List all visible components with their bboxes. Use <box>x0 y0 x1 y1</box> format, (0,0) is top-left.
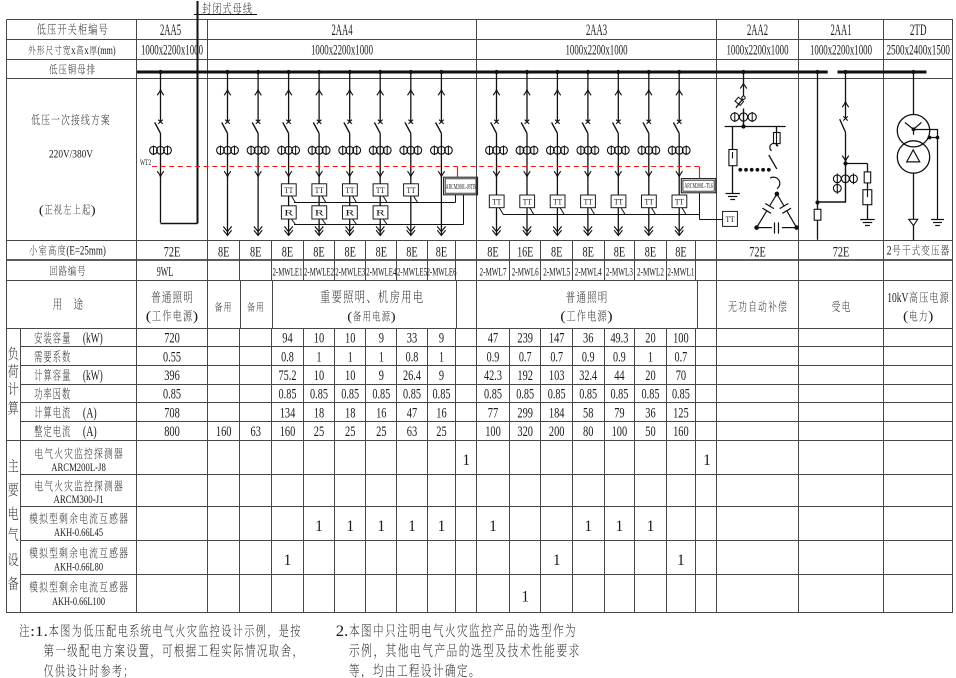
svg-text:2-MWLE3: 2-MWLE3 <box>335 265 365 279</box>
svg-text:1: 1 <box>408 518 416 535</box>
svg-text:1: 1 <box>616 518 624 535</box>
svg-text:100: 100 <box>485 424 501 440</box>
svg-text:72E: 72E <box>833 244 850 260</box>
svg-text:TT: TT <box>315 185 325 195</box>
svg-text:0.7: 0.7 <box>519 349 532 365</box>
svg-text:2TD: 2TD <box>910 22 927 39</box>
svg-text:0.85: 0.85 <box>484 387 502 403</box>
svg-text:1: 1 <box>346 518 354 535</box>
svg-text:103: 103 <box>549 368 565 384</box>
svg-text:25: 25 <box>345 424 355 440</box>
svg-text:18: 18 <box>314 405 324 421</box>
svg-text:AKH-0.66L45: AKH-0.66L45 <box>54 525 103 539</box>
svg-text:63: 63 <box>407 424 417 440</box>
svg-text:1000x2200x1000: 1000x2200x1000 <box>311 42 373 58</box>
svg-text:x: x <box>71 45 76 57</box>
svg-text:16: 16 <box>436 405 447 421</box>
svg-text:47: 47 <box>488 331 499 347</box>
svg-text:2AA4: 2AA4 <box>332 22 353 39</box>
svg-text:8E: 8E <box>583 244 594 260</box>
svg-text:0.85: 0.85 <box>516 387 534 403</box>
svg-text:10: 10 <box>314 331 324 347</box>
svg-text:75.2: 75.2 <box>279 368 297 384</box>
svg-text:2-MWL7: 2-MWL7 <box>480 265 507 279</box>
svg-text:2-MWL1: 2-MWL1 <box>667 265 694 279</box>
svg-text:): ) <box>391 310 396 324</box>
svg-text:0.85: 0.85 <box>403 387 421 403</box>
svg-text:79: 79 <box>614 405 624 421</box>
svg-text:26.4: 26.4 <box>403 368 421 384</box>
svg-text:x: x <box>84 45 89 57</box>
svg-text:2-MWLE4: 2-MWLE4 <box>366 265 396 279</box>
svg-text:ARCM200L-J8TB: ARCM200L-J8TB <box>446 183 476 191</box>
svg-text:80: 80 <box>583 424 593 440</box>
svg-text:2AA3: 2AA3 <box>586 22 607 39</box>
svg-text:1: 1 <box>284 552 292 569</box>
svg-text:200: 200 <box>549 424 565 440</box>
svg-text:8E: 8E <box>250 244 261 260</box>
svg-text:TT: TT <box>492 197 502 207</box>
svg-text:AKH-0.66L100: AKH-0.66L100 <box>52 594 105 608</box>
svg-text:160: 160 <box>280 424 296 440</box>
svg-text:R: R <box>315 208 324 218</box>
svg-text:2AA5: 2AA5 <box>160 22 181 39</box>
svg-text:0.85: 0.85 <box>610 387 628 403</box>
svg-text:0.85: 0.85 <box>672 387 690 403</box>
svg-text:2AA1: 2AA1 <box>831 22 852 39</box>
svg-text:160: 160 <box>216 424 232 440</box>
svg-text:147: 147 <box>549 331 565 347</box>
svg-text:0.85: 0.85 <box>433 387 451 403</box>
svg-text:1: 1 <box>379 349 384 365</box>
svg-text:ARCM300-J1: ARCM300-J1 <box>54 492 104 506</box>
svg-text:36: 36 <box>583 331 594 347</box>
svg-text:396: 396 <box>164 368 180 384</box>
svg-text:(: ( <box>560 309 566 325</box>
svg-text:10: 10 <box>345 368 355 384</box>
svg-text:9: 9 <box>379 331 384 347</box>
svg-text:100: 100 <box>612 424 628 440</box>
svg-text:TT: TT <box>407 185 417 195</box>
svg-text:0.7: 0.7 <box>675 349 688 365</box>
svg-text:2: 2 <box>887 244 892 258</box>
svg-text:20: 20 <box>645 368 655 384</box>
svg-text:1: 1 <box>521 589 529 606</box>
svg-text:192: 192 <box>517 368 533 384</box>
svg-text:0.7: 0.7 <box>550 349 563 365</box>
svg-text:8E: 8E <box>406 244 417 260</box>
svg-text:TT: TT <box>726 214 736 224</box>
svg-text:R: R <box>284 208 293 218</box>
svg-text:): ) <box>193 309 198 325</box>
svg-text:10: 10 <box>345 331 355 347</box>
svg-text:100: 100 <box>673 331 689 347</box>
svg-text:49.3: 49.3 <box>610 331 628 347</box>
svg-text:70: 70 <box>676 368 686 384</box>
svg-text:8E: 8E <box>218 244 229 260</box>
svg-text:299: 299 <box>517 405 533 421</box>
svg-text:TT: TT <box>614 197 624 207</box>
svg-text:720: 720 <box>164 331 180 347</box>
svg-text:58: 58 <box>583 405 593 421</box>
svg-text:9: 9 <box>439 368 444 384</box>
svg-text:8E: 8E <box>345 244 356 260</box>
svg-text:72E: 72E <box>749 244 766 260</box>
svg-text:2-MWLE1: 2-MWLE1 <box>273 265 303 279</box>
svg-text:2-MWL3: 2-MWL3 <box>606 265 633 279</box>
svg-text:1: 1 <box>553 552 561 569</box>
svg-text:320: 320 <box>517 424 533 440</box>
svg-text:134: 134 <box>280 405 296 421</box>
svg-text:8E: 8E <box>614 244 625 260</box>
svg-text:TT: TT <box>584 197 594 207</box>
svg-text:0.55: 0.55 <box>163 349 181 365</box>
svg-text:800: 800 <box>164 424 180 440</box>
svg-text:0.85: 0.85 <box>642 387 660 403</box>
svg-text:TT: TT <box>376 185 386 195</box>
svg-text:2-MWLE6: 2-MWLE6 <box>427 265 457 279</box>
svg-text:(E=25mm): (E=25mm) <box>66 244 106 258</box>
svg-text:0.85: 0.85 <box>163 387 181 403</box>
svg-text:8E: 8E <box>313 244 324 260</box>
svg-text:20: 20 <box>645 331 655 347</box>
svg-text:77: 77 <box>488 405 499 421</box>
svg-text:1000x2200x1000: 1000x2200x1000 <box>141 42 203 58</box>
svg-text:1: 1 <box>439 349 444 365</box>
svg-text:8E: 8E <box>645 244 656 260</box>
svg-text:1: 1 <box>377 518 385 535</box>
svg-text:TT: TT <box>675 197 685 207</box>
svg-text:AKH-0.66L80: AKH-0.66L80 <box>54 560 103 574</box>
svg-text:0.85: 0.85 <box>372 387 390 403</box>
svg-text:16: 16 <box>376 405 387 421</box>
svg-text:160: 160 <box>673 424 689 440</box>
svg-text:(mm): (mm) <box>98 45 116 57</box>
svg-text:0.9: 0.9 <box>613 349 626 365</box>
svg-text:0.9: 0.9 <box>582 349 595 365</box>
svg-text:1: 1 <box>348 349 353 365</box>
svg-text:TT: TT <box>523 197 533 207</box>
svg-text:1: 1 <box>315 518 323 535</box>
svg-text:1000x2200x1000: 1000x2200x1000 <box>727 42 789 58</box>
svg-text:1: 1 <box>677 552 685 569</box>
svg-text:2-MWL6: 2-MWL6 <box>512 265 539 279</box>
svg-text:2-MWL4: 2-MWL4 <box>575 265 602 279</box>
svg-text:1: 1 <box>648 349 653 365</box>
svg-text:): ) <box>928 309 933 324</box>
svg-text:1: 1 <box>489 518 497 535</box>
svg-text:8E: 8E <box>675 244 686 260</box>
svg-text:1000x2200x1000: 1000x2200x1000 <box>810 42 872 58</box>
svg-text:2AA2: 2AA2 <box>747 22 768 39</box>
svg-text:8E: 8E <box>551 244 562 260</box>
svg-text:2500x2400x1500: 2500x2400x1500 <box>886 42 950 58</box>
svg-text:(kW): (kW) <box>83 368 103 384</box>
svg-text:TT: TT <box>645 197 655 207</box>
svg-text:32.4: 32.4 <box>579 368 597 384</box>
svg-text::1.: :1. <box>30 623 48 640</box>
svg-text:9: 9 <box>379 368 384 384</box>
svg-text:(: ( <box>146 309 152 325</box>
svg-text:R: R <box>345 208 354 218</box>
svg-text:1: 1 <box>316 349 321 365</box>
svg-text:1: 1 <box>438 518 446 535</box>
svg-text:): ) <box>607 309 612 325</box>
svg-text:(kW): (kW) <box>83 331 103 347</box>
svg-text:1000x2200x1000: 1000x2200x1000 <box>566 42 628 58</box>
svg-text:8E: 8E <box>282 244 293 260</box>
svg-text:72E: 72E <box>164 244 181 260</box>
svg-text:0.8: 0.8 <box>406 349 419 365</box>
svg-text:10: 10 <box>314 368 324 384</box>
svg-text:9WL: 9WL <box>157 265 174 280</box>
svg-text:25: 25 <box>436 424 446 440</box>
svg-text:9: 9 <box>439 331 444 347</box>
svg-text:239: 239 <box>517 331 533 347</box>
svg-text:(A): (A) <box>83 424 97 440</box>
svg-text:16E: 16E <box>517 244 533 260</box>
svg-text:ARCM200L-TL6: ARCM200L-TL6 <box>684 182 713 190</box>
svg-text:47: 47 <box>407 405 418 421</box>
svg-text:184: 184 <box>549 405 565 421</box>
svg-text:0.8: 0.8 <box>281 349 294 365</box>
svg-text:42.3: 42.3 <box>484 368 502 384</box>
svg-text:44: 44 <box>614 368 625 384</box>
svg-text:2-MWL2: 2-MWL2 <box>637 265 664 279</box>
svg-text:2-MWL5: 2-MWL5 <box>543 265 570 279</box>
svg-text:2-MWLE2: 2-MWLE2 <box>304 265 334 279</box>
svg-text:TT: TT <box>345 185 355 195</box>
svg-text:0.85: 0.85 <box>341 387 359 403</box>
svg-text:63: 63 <box>251 424 261 440</box>
svg-text:0.9: 0.9 <box>487 349 500 365</box>
svg-text:50: 50 <box>645 424 655 440</box>
svg-text:TT: TT <box>284 185 294 195</box>
svg-text:(: ( <box>39 203 44 217</box>
svg-text:2.: 2. <box>336 623 349 640</box>
svg-text:33: 33 <box>407 331 417 347</box>
svg-text:ARCM200L-J8: ARCM200L-J8 <box>51 460 106 474</box>
svg-text:0.85: 0.85 <box>548 387 566 403</box>
svg-text:): ) <box>91 203 96 217</box>
svg-text:(A): (A) <box>83 405 97 421</box>
svg-text:1: 1 <box>462 452 470 469</box>
svg-text:94: 94 <box>282 331 293 347</box>
svg-text:WT2: WT2 <box>140 158 151 167</box>
svg-text:125: 125 <box>673 405 689 421</box>
svg-text:(: ( <box>347 310 352 324</box>
svg-text:(: ( <box>903 309 908 324</box>
svg-text:R: R <box>376 208 385 218</box>
svg-text:36: 36 <box>645 405 656 421</box>
svg-text:0.85: 0.85 <box>279 387 297 403</box>
svg-text:1: 1 <box>647 518 655 535</box>
svg-text:220V/380V: 220V/380V <box>49 147 94 160</box>
svg-text:8E: 8E <box>487 244 498 260</box>
svg-text:708: 708 <box>164 405 180 421</box>
svg-text:8E: 8E <box>436 244 447 260</box>
svg-text:0.85: 0.85 <box>310 387 328 403</box>
svg-text:25: 25 <box>314 424 324 440</box>
svg-text:0.85: 0.85 <box>579 387 597 403</box>
svg-text:8E: 8E <box>376 244 387 260</box>
svg-text:TT: TT <box>553 197 563 207</box>
svg-text:1: 1 <box>584 518 592 535</box>
svg-text:25: 25 <box>376 424 386 440</box>
svg-text:10kV: 10kV <box>887 290 908 305</box>
svg-text:1: 1 <box>703 452 711 469</box>
svg-text:2-MWLE5: 2-MWLE5 <box>397 265 427 279</box>
svg-text:18: 18 <box>345 405 355 421</box>
